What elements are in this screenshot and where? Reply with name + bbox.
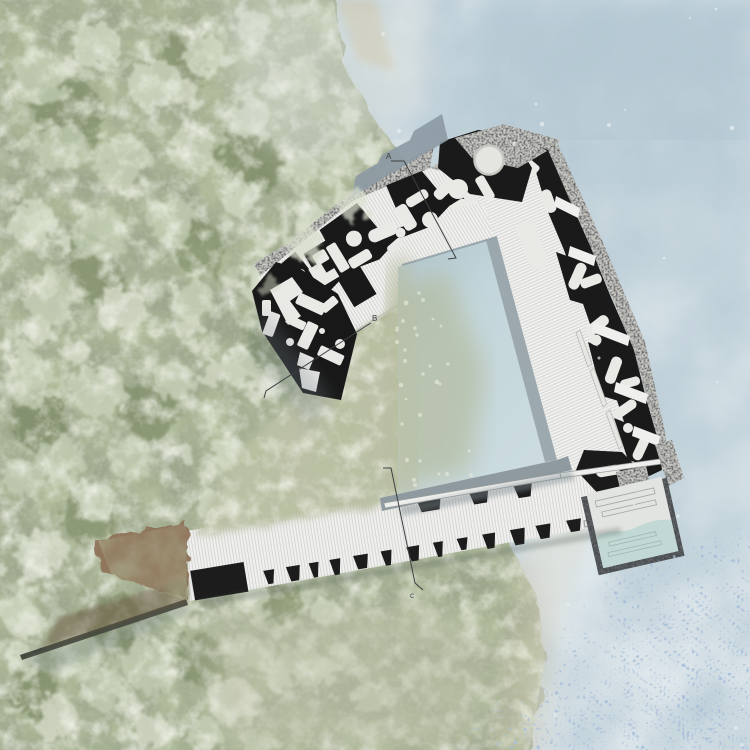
- svg-text:B: B: [372, 314, 377, 323]
- svg-text:c: c: [410, 591, 414, 600]
- svg-text:A: A: [386, 152, 392, 161]
